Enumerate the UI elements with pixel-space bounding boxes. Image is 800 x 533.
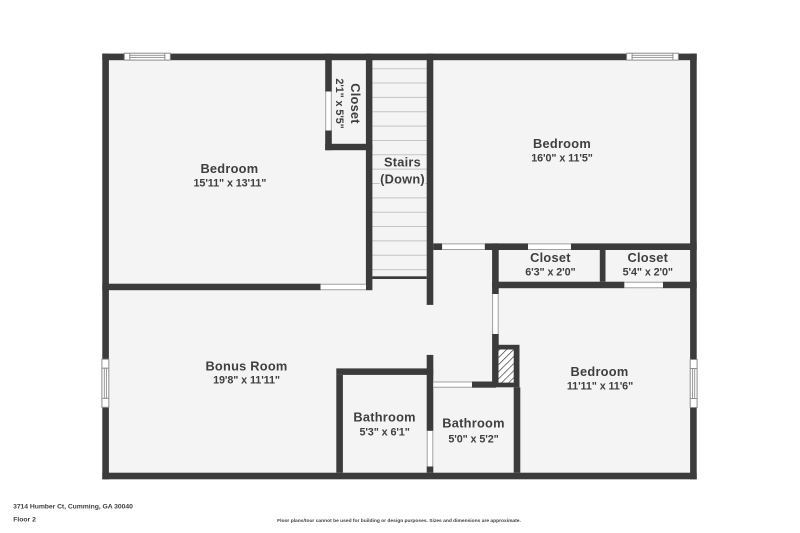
svg-text:5'4" x 2'0": 5'4" x 2'0" [623, 267, 673, 279]
svg-text:16'0" x 11'5": 16'0" x 11'5" [531, 153, 593, 165]
svg-text:Closet: Closet [627, 250, 668, 265]
svg-text:6'3" x 2'0": 6'3" x 2'0" [525, 267, 575, 279]
svg-text:Closet: Closet [348, 83, 363, 124]
svg-text:11'11" x 11'6": 11'11" x 11'6" [567, 380, 633, 392]
svg-text:5'0" x 5'2": 5'0" x 5'2" [448, 433, 498, 445]
svg-text:19'8" x 11'11": 19'8" x 11'11" [213, 375, 280, 387]
svg-text:2'1" x 5'5": 2'1" x 5'5" [333, 78, 345, 128]
svg-text:Bonus Room: Bonus Room [205, 359, 287, 374]
svg-text:Bathroom: Bathroom [353, 410, 415, 425]
svg-text:15'11" x 13'11": 15'11" x 13'11" [194, 178, 267, 190]
svg-text:Stairs: Stairs [384, 154, 421, 169]
svg-text:Bedroom: Bedroom [200, 161, 258, 176]
svg-text:Floor plans/tour cannot be use: Floor plans/tour cannot be used for buil… [277, 518, 521, 524]
svg-text:Bedroom: Bedroom [571, 364, 629, 379]
svg-text:5'3" x 6'1": 5'3" x 6'1" [359, 426, 409, 438]
svg-text:3714 Humber Ct, Cumming, GA 30: 3714 Humber Ct, Cumming, GA 30040 [13, 504, 133, 511]
svg-text:Bathroom: Bathroom [442, 416, 504, 431]
svg-text:Closet: Closet [530, 250, 571, 265]
svg-text:Floor 2: Floor 2 [13, 517, 36, 524]
svg-text:Bedroom: Bedroom [533, 136, 591, 151]
svg-text:(Down): (Down) [380, 171, 425, 186]
